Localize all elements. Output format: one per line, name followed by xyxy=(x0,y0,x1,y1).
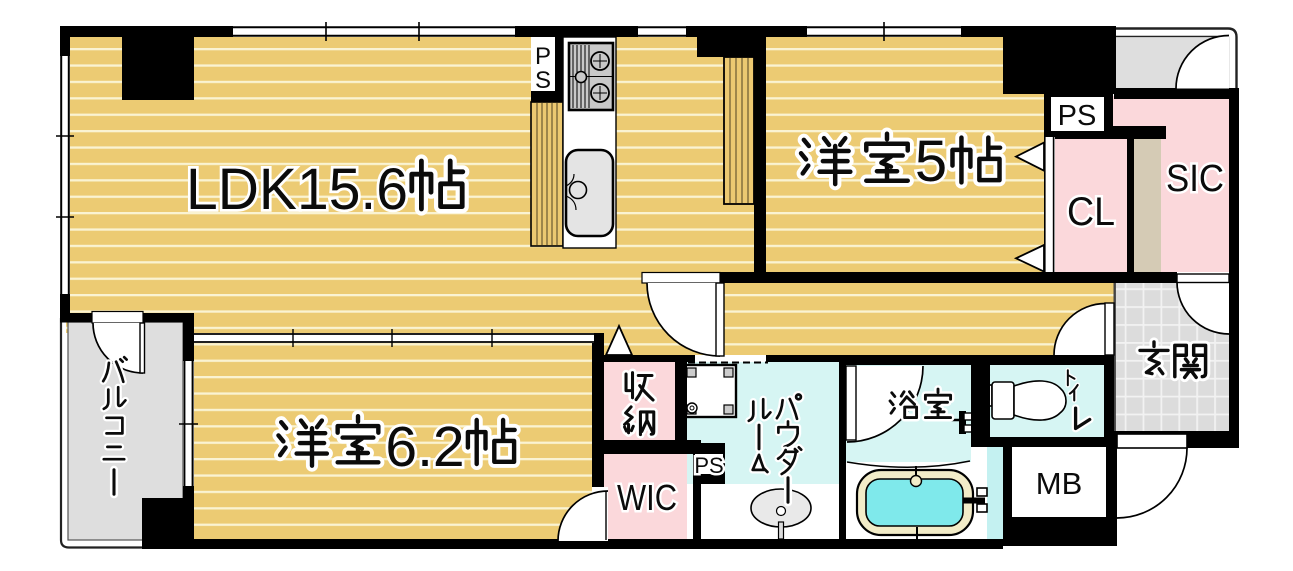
svg-text:PS: PS xyxy=(694,453,723,478)
svg-text:SIC: SIC xyxy=(1166,158,1224,200)
svg-text:CL: CL xyxy=(1067,190,1115,234)
svg-text:P: P xyxy=(535,43,551,70)
svg-text:5: 5 xyxy=(915,129,947,194)
svg-text:MB: MB xyxy=(1036,466,1083,501)
svg-text:LDK15.6: LDK15.6 xyxy=(186,157,408,222)
svg-text:6.2: 6.2 xyxy=(385,415,464,479)
svg-text:PS: PS xyxy=(1058,100,1097,132)
svg-text:S: S xyxy=(535,67,551,94)
svg-text:WIC: WIC xyxy=(617,477,677,518)
